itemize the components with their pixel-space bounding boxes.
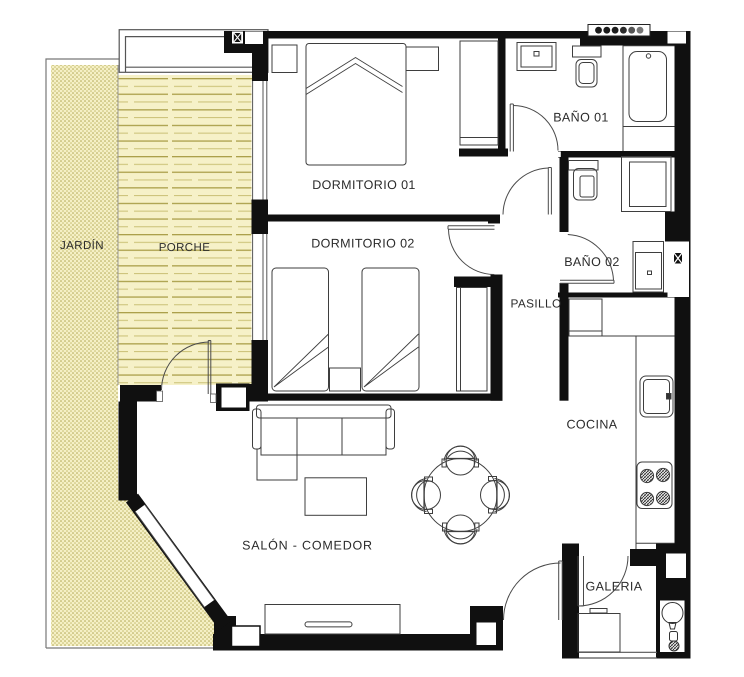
svg-text:PORCHE: PORCHE	[159, 242, 211, 254]
svg-text:DORMITORIO 01: DORMITORIO 01	[312, 178, 416, 192]
svg-text:GALERIA: GALERIA	[586, 580, 643, 594]
svg-text:DORMITORIO 02: DORMITORIO 02	[311, 237, 415, 251]
svg-text:BAÑO 01: BAÑO 01	[553, 111, 609, 125]
svg-text:COCINA: COCINA	[566, 418, 617, 432]
svg-text:SALÓN - COMEDOR: SALÓN - COMEDOR	[242, 539, 373, 553]
svg-text:PASILLO: PASILLO	[510, 297, 561, 311]
svg-text:BAÑO 02: BAÑO 02	[564, 255, 620, 269]
svg-text:JARDÍN: JARDÍN	[60, 239, 104, 252]
